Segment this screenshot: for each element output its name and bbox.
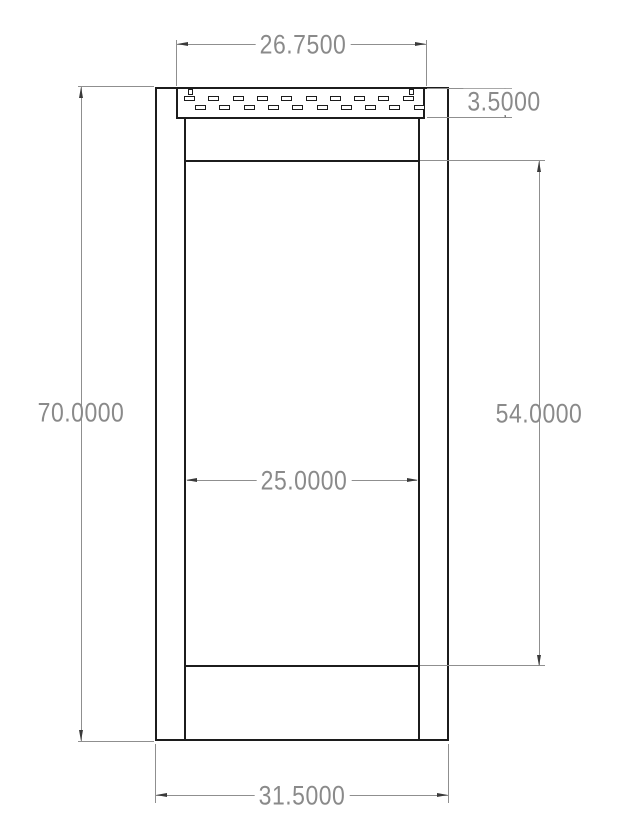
dimension-arrow (537, 161, 541, 172)
louver-slat-dash (414, 105, 425, 110)
louver-slat-dash (281, 96, 292, 101)
extension-line (448, 744, 449, 803)
dimension-text-louver-height: 3.5000 (463, 89, 544, 115)
louver-slat-dash (233, 96, 244, 101)
louver-slat-dash (378, 96, 389, 101)
opening-top-line (186, 160, 418, 162)
dimension-arrow (186, 478, 197, 482)
louver-slat-dash (257, 96, 268, 101)
extension-line (426, 40, 427, 86)
louver-slat-dash (330, 96, 341, 101)
dimension-text-overall-height: 70.0000 (38, 400, 125, 426)
louver-slat-dash (184, 96, 195, 101)
dimension-text-opening-width: 25.0000 (257, 468, 352, 494)
dimension-arrow (437, 793, 448, 797)
louver-slat-dash (292, 105, 303, 110)
louver-slat-dash (268, 105, 279, 110)
louver-slat-dash (195, 105, 206, 110)
dimension-arrow (407, 478, 418, 482)
extension-line (420, 665, 545, 666)
extension-line (78, 741, 154, 742)
frame-outline (155, 87, 449, 741)
louver-slat-dash (341, 105, 352, 110)
extension-line (78, 86, 154, 87)
extension-line (420, 160, 545, 161)
dimension-arrow (415, 42, 426, 46)
louver-slat-dash (403, 96, 414, 101)
louver-slat-dash (208, 96, 219, 101)
right-stile-line (418, 117, 420, 741)
louver-panel (176, 87, 425, 119)
dimension-arrow (177, 42, 188, 46)
dimension-text-opening-height: 54.0000 (496, 401, 583, 427)
louver-slat-dash (306, 96, 317, 101)
vent-tab-right (409, 89, 414, 95)
dimension-text-louver-width: 26.7500 (256, 32, 351, 58)
opening-bottom-line (186, 665, 418, 667)
left-stile-line (184, 117, 186, 741)
louver-slat-dash (244, 105, 255, 110)
dimension-arrow (79, 87, 83, 98)
dimension-arrow (156, 793, 167, 797)
louver-slat-dash (365, 105, 376, 110)
louver-slat-dash (317, 105, 328, 110)
extension-line (176, 40, 177, 86)
louver-slat-dash (354, 96, 365, 101)
dimension-text-overall-width: 31.5000 (255, 783, 350, 809)
dimension-arrow (79, 730, 83, 741)
louver-slat-dash (389, 105, 400, 110)
louver-slat-dash (219, 105, 230, 110)
drawing-canvas: 26.7500 3.5000 70.0000 54.0000 25.0000 (0, 0, 630, 823)
vent-tab-left (188, 89, 193, 95)
extension-line (427, 117, 512, 118)
dimension-arrow (537, 655, 541, 666)
